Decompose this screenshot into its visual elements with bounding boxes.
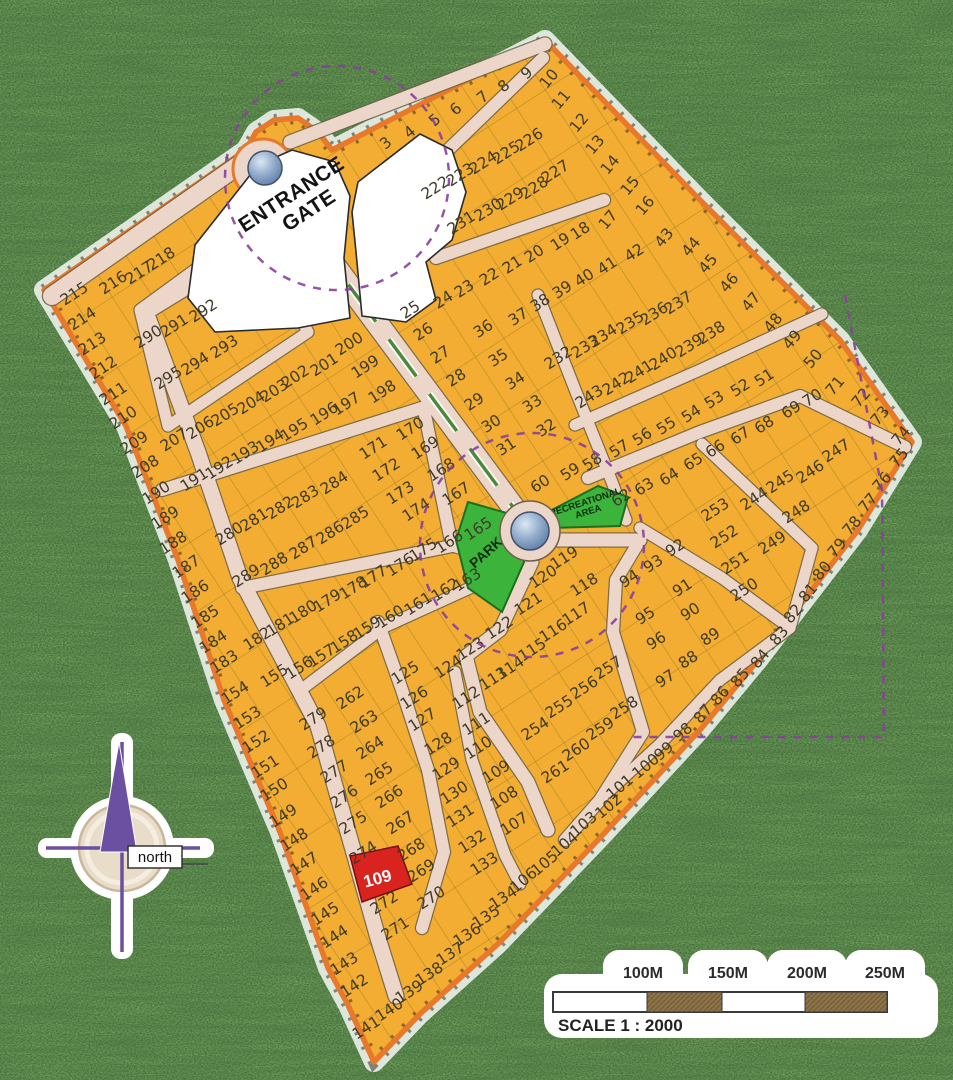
plat-svg: ENTRANCEGATEPARKRECREATIONALAREA109 3456… xyxy=(0,0,953,1080)
subdivision-plat-map: ENTRANCEGATEPARKRECREATIONALAREA109 3456… xyxy=(0,0,953,1080)
scale-bar-segment-brown-2 xyxy=(805,992,887,1012)
scale-distance-label: 150M xyxy=(708,965,748,982)
scale-distance-label: 200M xyxy=(787,965,827,982)
scale-bar-segment-brown-1 xyxy=(647,992,722,1012)
scale-distance-label: 100M xyxy=(623,965,663,982)
gate-marker-circle xyxy=(248,151,282,185)
scale-distance-label: 250M xyxy=(865,965,905,982)
compass-label: north xyxy=(138,849,172,866)
roundabout-center-circle xyxy=(511,512,549,550)
scale-caption: SCALE 1 : 2000 xyxy=(558,1016,683,1035)
